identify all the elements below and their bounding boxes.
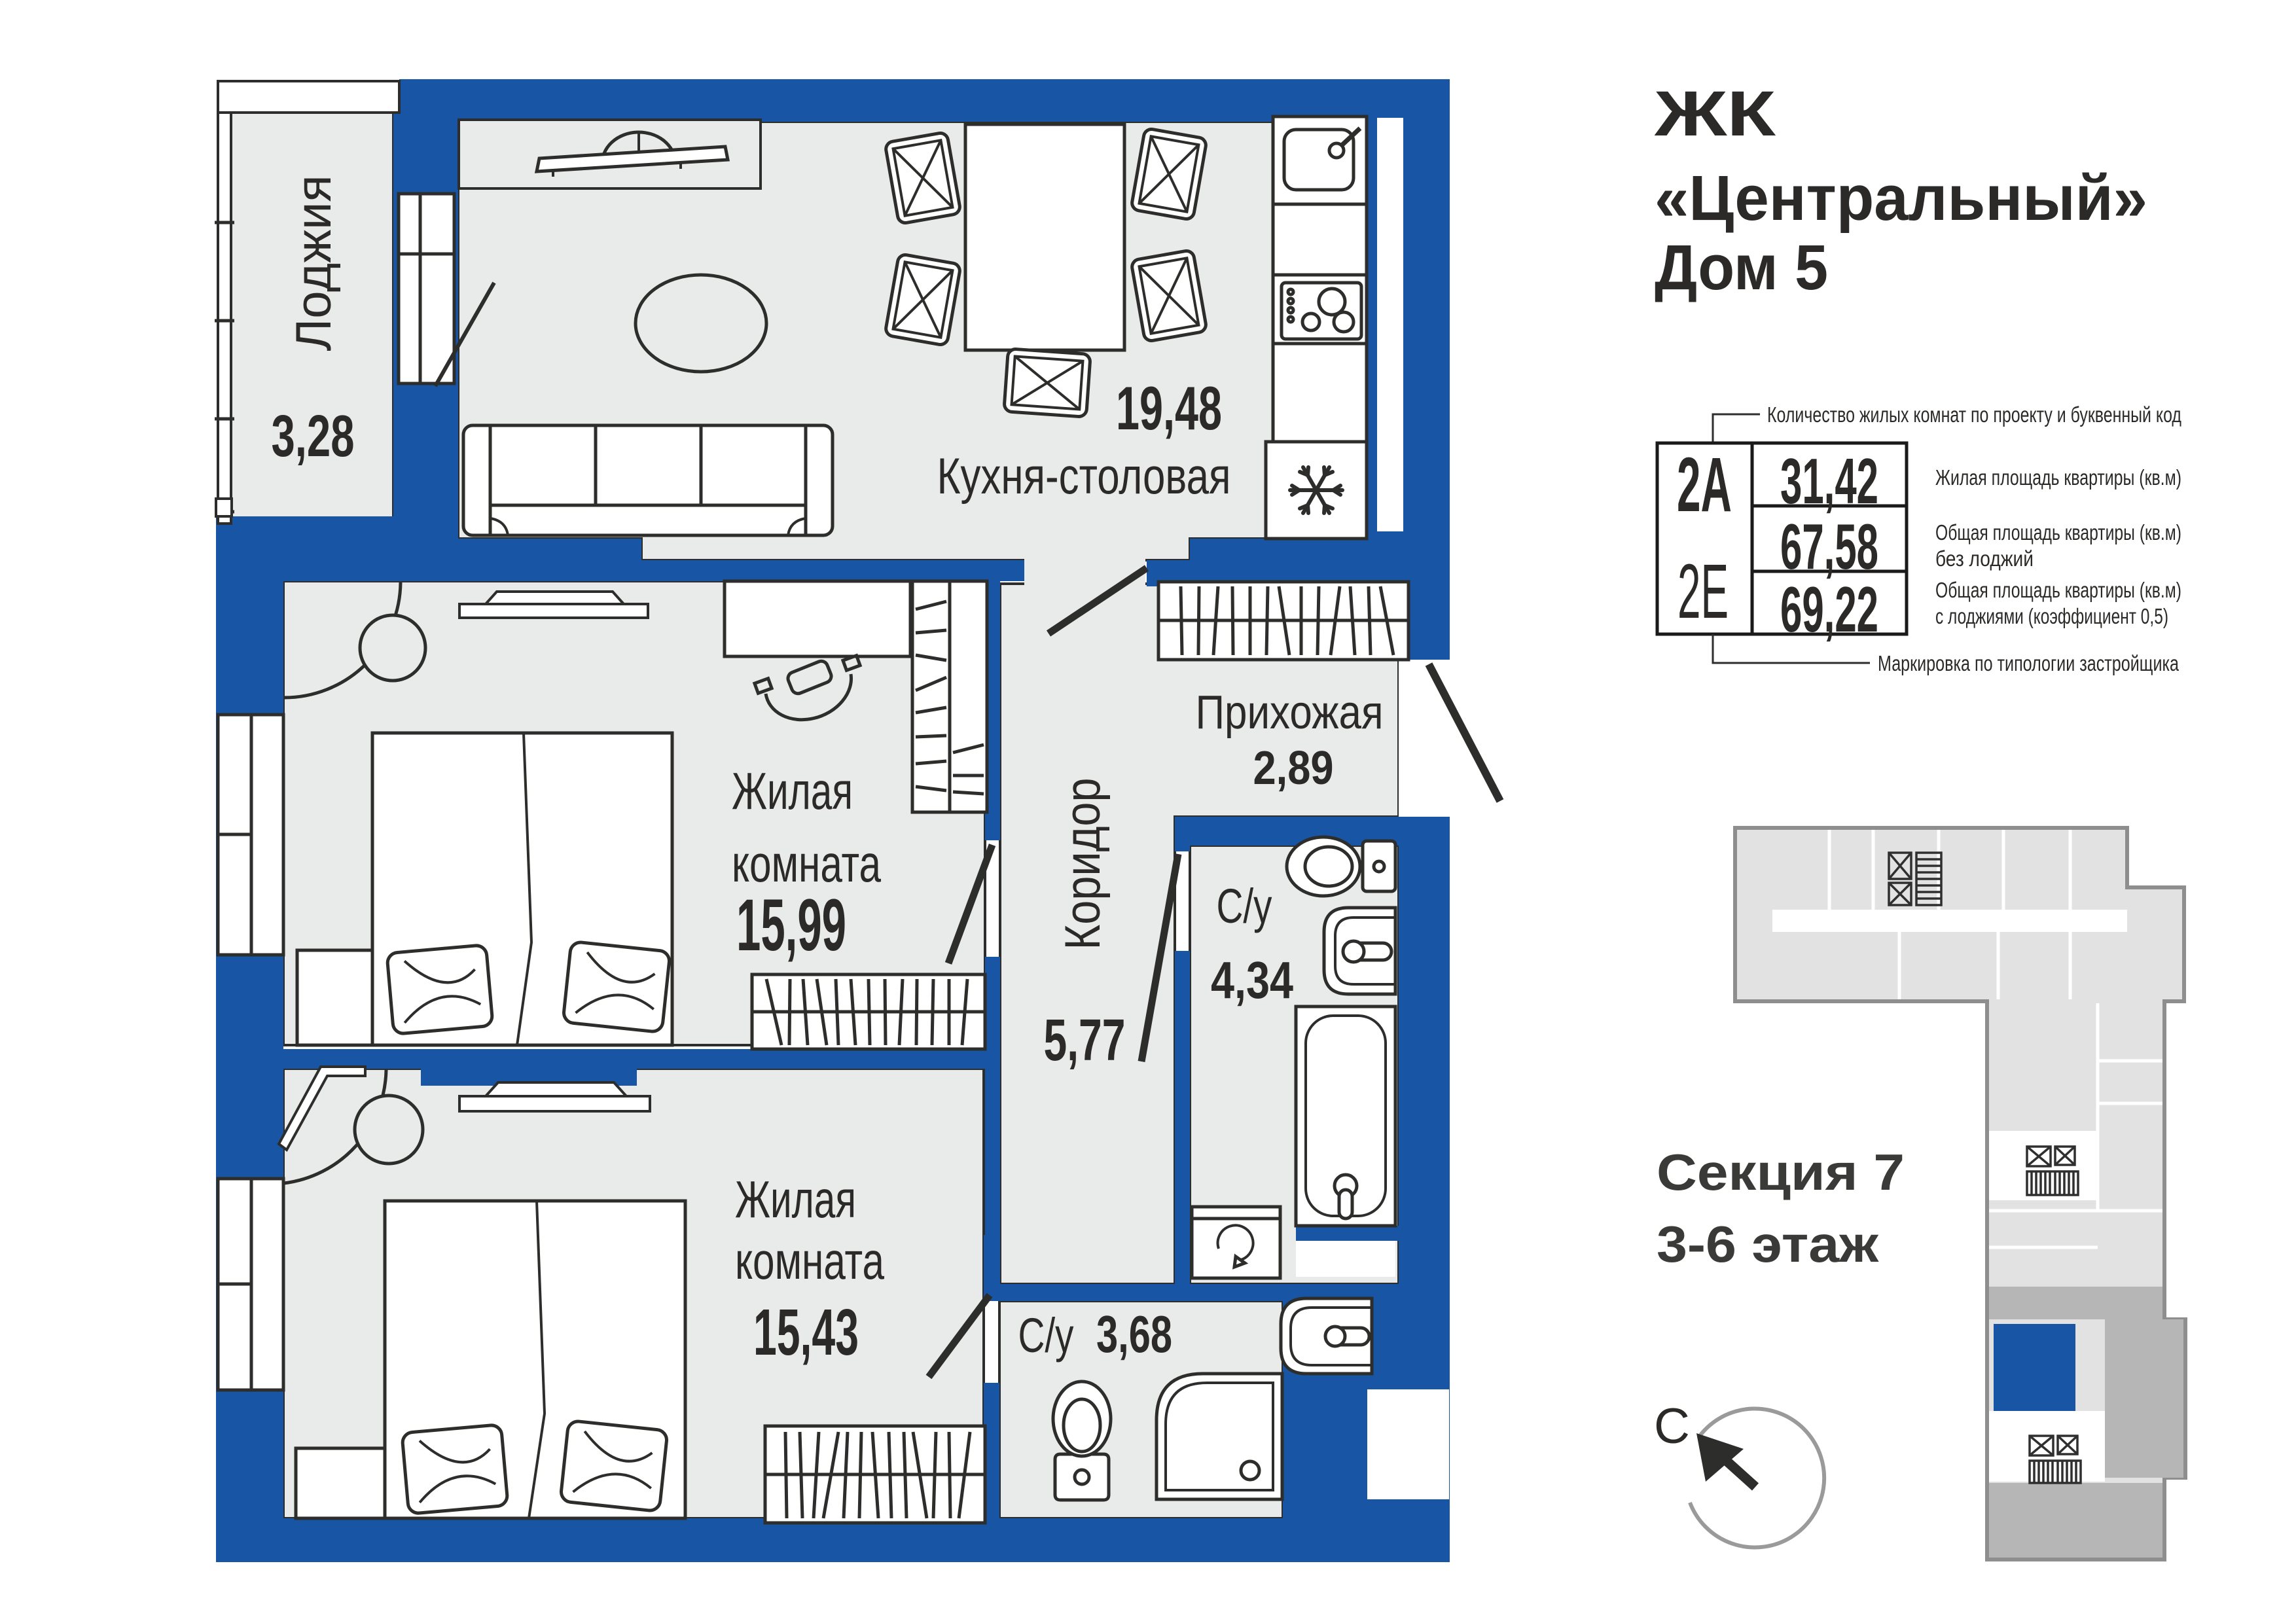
svg-text:15,99: 15,99 [736,884,846,966]
svg-text:Жилая: Жилая [732,762,853,820]
svg-text:3-6 этаж: 3-6 этаж [1657,1215,1879,1273]
svg-text:Лоджия: Лоджия [286,175,342,351]
svg-text:комната: комната [735,1232,884,1290]
svg-text:«Центральный»: «Центральный» [1655,162,2147,234]
svg-text:2Е: 2Е [1677,548,1729,635]
svg-text:без лоджий: без лоджий [1935,546,2034,571]
svg-text:67,58: 67,58 [1780,510,1878,582]
svg-text:Общая площадь квартиры (кв.м): Общая площадь квартиры (кв.м) [1935,520,2181,544]
svg-text:с лоджиями (коэффициент 0,5): с лоджиями (коэффициент 0,5) [1935,604,2168,628]
svg-text:Дом 5: Дом 5 [1655,232,1828,303]
svg-text:31,42: 31,42 [1780,445,1878,517]
svg-text:15,43: 15,43 [753,1296,859,1369]
svg-text:69,22: 69,22 [1780,573,1878,645]
svg-text:Коридор: Коридор [1055,778,1111,950]
svg-text:Маркировка по типологии застро: Маркировка по типологии застройщика [1878,651,2179,675]
svg-text:Кухня-столовая: Кухня-столовая [937,447,1231,505]
svg-text:Жилая: Жилая [735,1170,856,1228]
svg-text:3,68: 3,68 [1096,1305,1172,1363]
svg-text:Секция 7: Секция 7 [1657,1143,1905,1201]
svg-text:С/у: С/у [1018,1308,1074,1363]
svg-text:4,34: 4,34 [1211,951,1293,1009]
svg-text:ЖК: ЖК [1654,78,1776,149]
svg-text:3,28: 3,28 [272,404,355,469]
svg-text:Количество жилых комнат по про: Количество жилых комнат по проекту и бук… [1767,402,2181,427]
svg-text:5,77: 5,77 [1044,1008,1126,1073]
svg-text:С/у: С/у [1217,879,1272,933]
svg-text:Прихожая: Прихожая [1196,687,1384,739]
svg-text:19,48: 19,48 [1116,374,1222,442]
svg-text:2А: 2А [1677,442,1732,528]
svg-text:2,89: 2,89 [1253,742,1334,794]
svg-text:С: С [1654,1399,1690,1454]
svg-text:Жилая площадь квартиры (кв.м): Жилая площадь квартиры (кв.м) [1935,465,2181,490]
svg-text:Общая площадь квартиры (кв.м): Общая площадь квартиры (кв.м) [1935,578,2181,602]
